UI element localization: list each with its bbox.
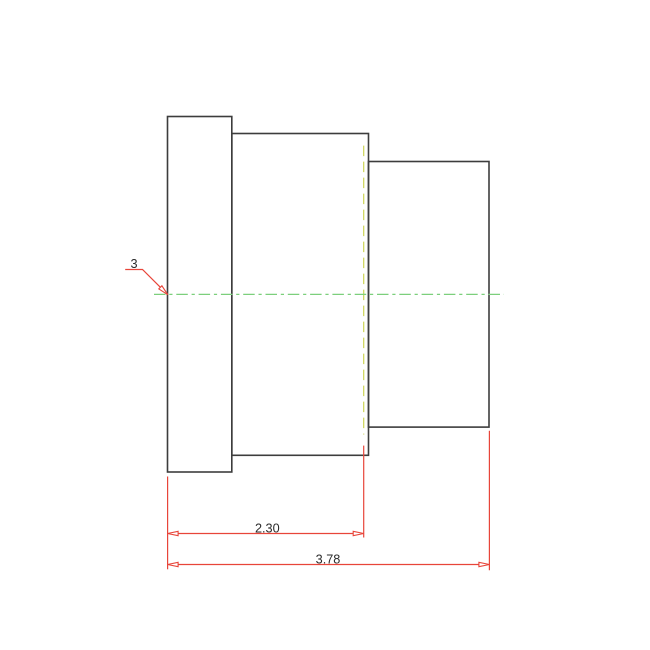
svg-text:3: 3 <box>130 257 137 271</box>
svg-text:2.30: 2.30 <box>255 521 280 535</box>
svg-text:3.78: 3.78 <box>316 553 341 567</box>
